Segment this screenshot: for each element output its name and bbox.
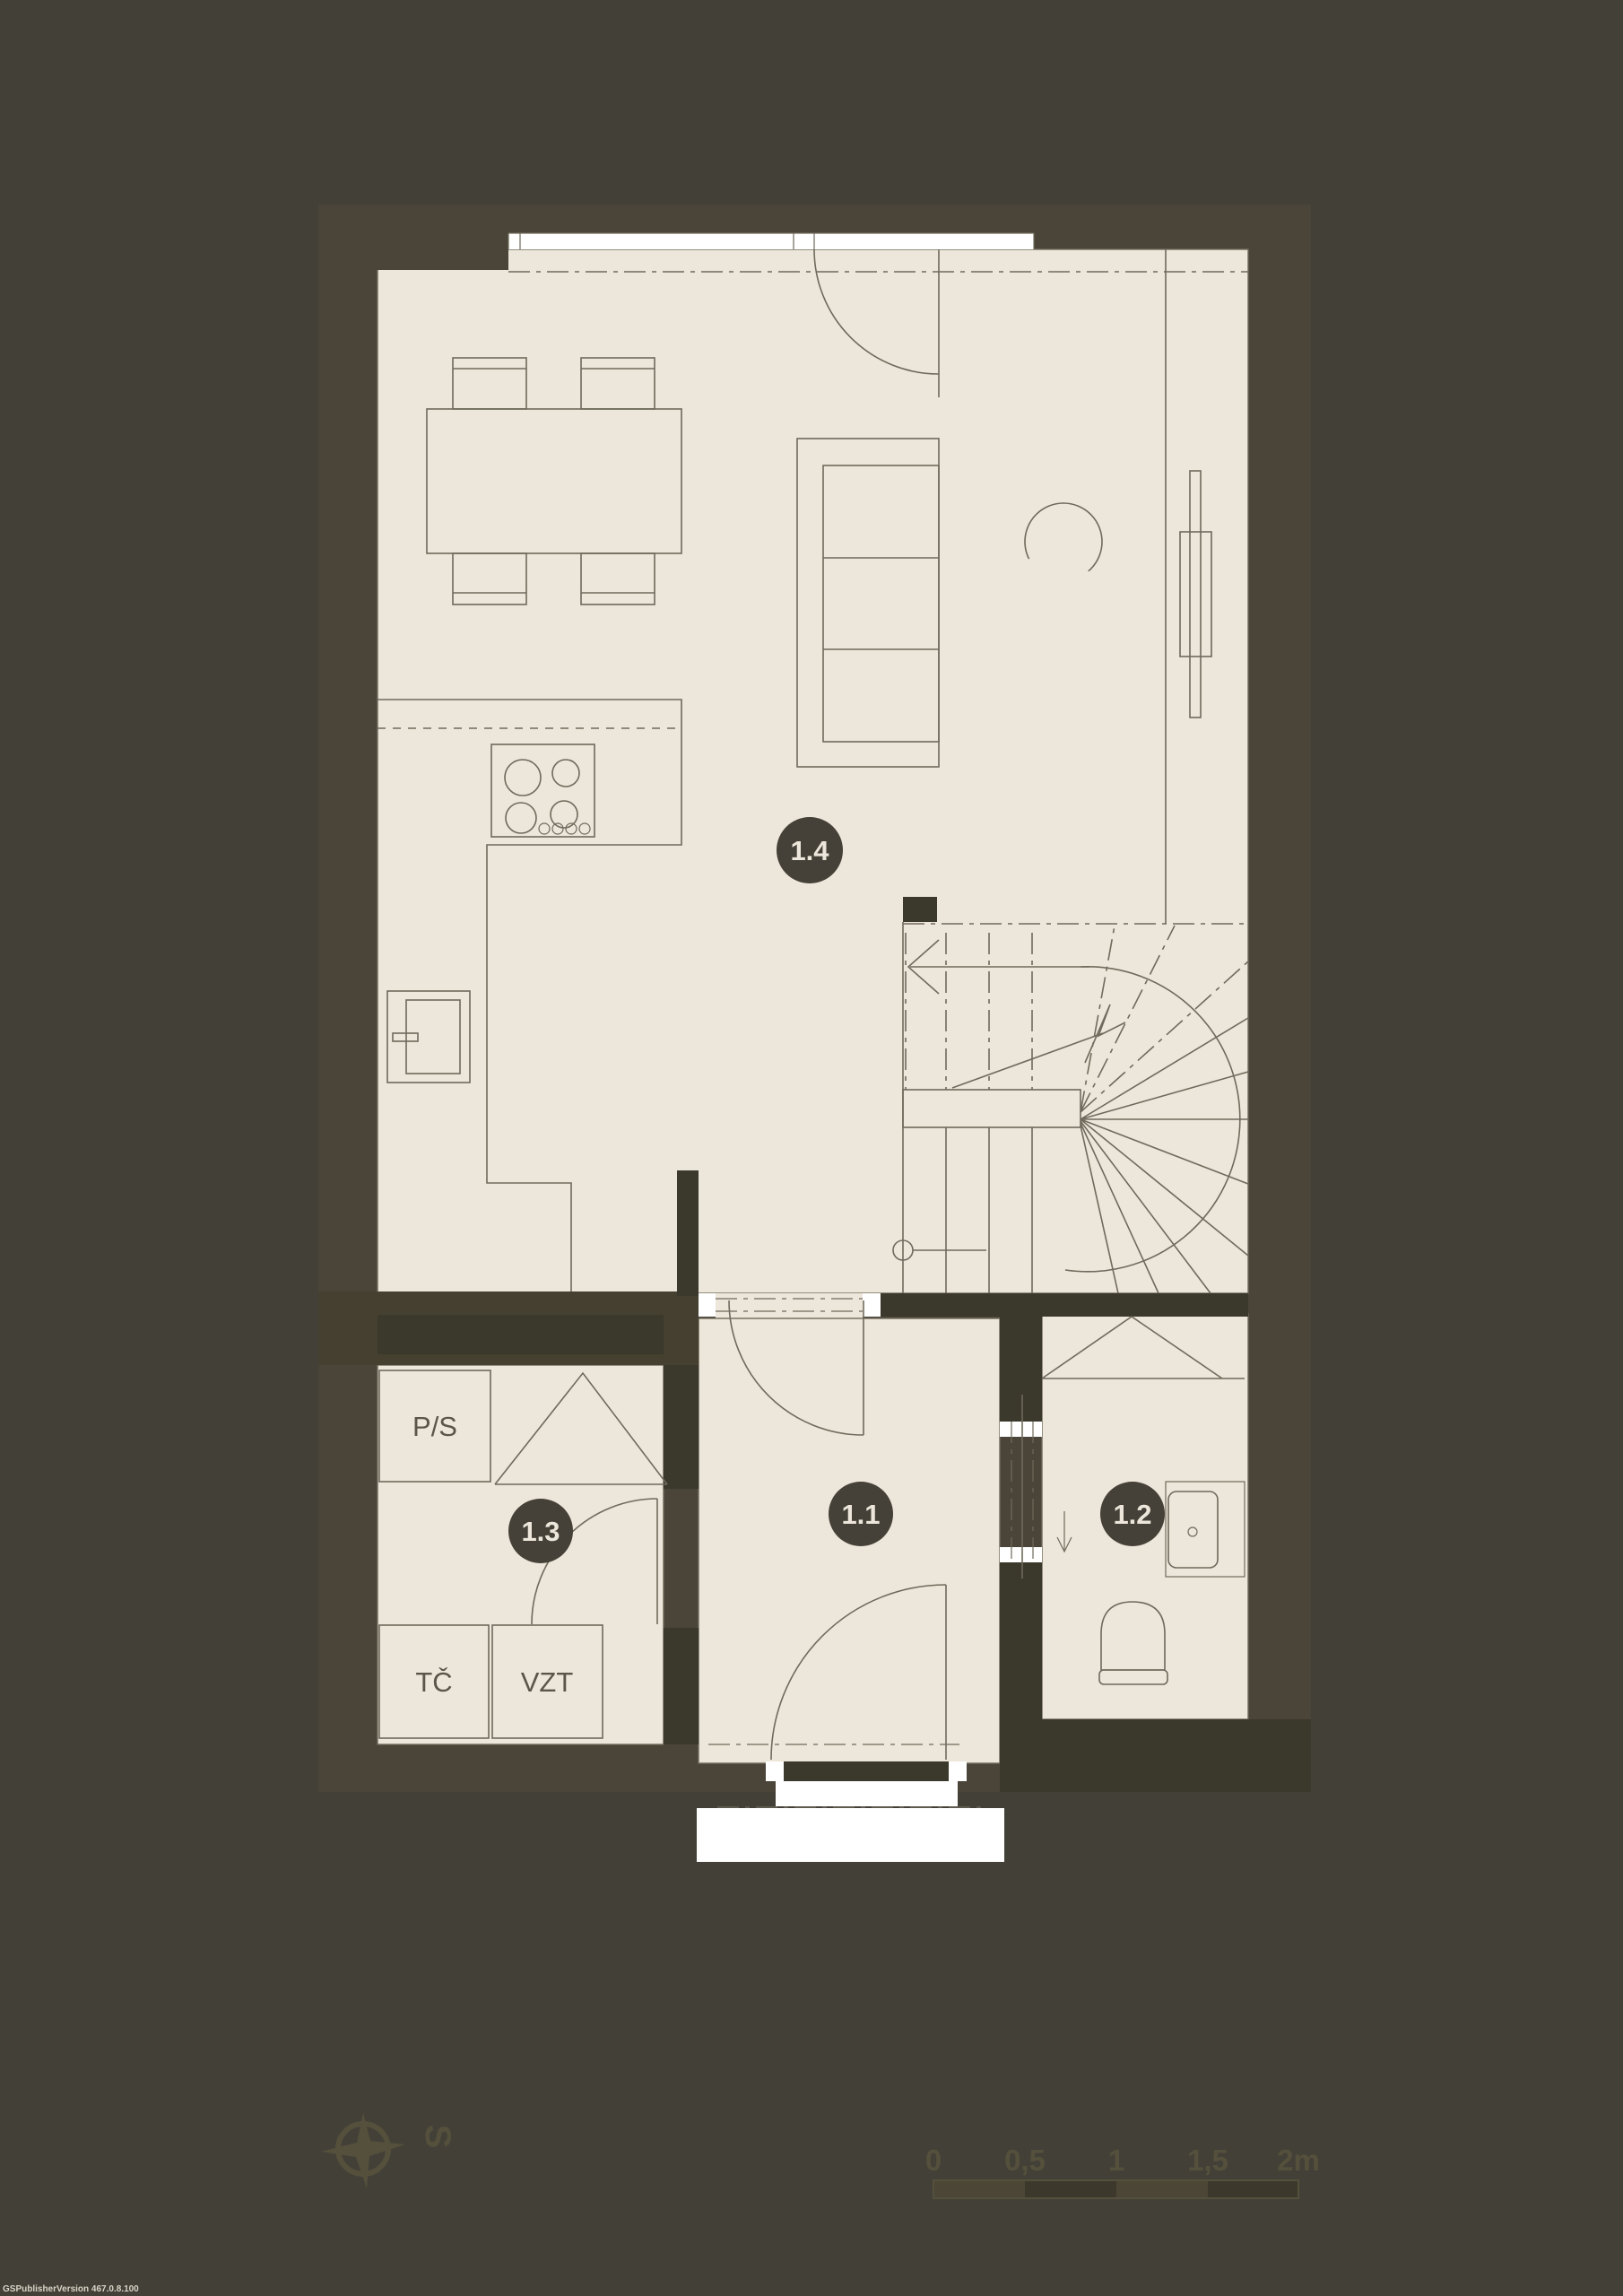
room-label-1-3: 1.3 <box>521 1516 560 1547</box>
entrance-step-2 <box>697 1808 1004 1862</box>
top-left-wall-step <box>377 248 508 270</box>
scale-tick-0-5: 0,5 <box>1004 2144 1046 2177</box>
wall-technical-hall-lower <box>664 1628 699 1744</box>
hall-doorway-floor <box>716 1293 863 1320</box>
ventilation-label: VZT <box>521 1666 574 1698</box>
room-living-floor <box>378 249 1248 1293</box>
scale-tick-1-5: 1,5 <box>1187 2144 1228 2177</box>
entrance-step-1 <box>776 1781 958 1806</box>
pocket-jamb-lower <box>1000 1547 1042 1562</box>
wall-living-technical-core <box>378 1315 664 1354</box>
wall-stair-hall <box>863 1293 1248 1317</box>
room-label-1-1: 1.1 <box>841 1499 880 1530</box>
scale-seg-3 <box>1116 2180 1208 2198</box>
wall-pocket-lower <box>1000 1562 1042 1719</box>
entrance-threshold <box>784 1761 949 1781</box>
wall-pier <box>677 1170 699 1296</box>
room-label-1-4: 1.4 <box>790 835 829 866</box>
scale-tick-0: 0 <box>925 2144 942 2177</box>
door-jamb-right <box>863 1293 881 1317</box>
pocket-jamb-upper <box>1000 1422 1042 1437</box>
entrance-jamb-right <box>949 1761 967 1781</box>
compass-north-label: S <box>418 2125 457 2149</box>
scale-seg-2 <box>1025 2180 1116 2198</box>
scale-seg-4 <box>1208 2180 1298 2198</box>
floor-plan-drawing: 1.4 1.1 1.2 1.3 P/S TČ VZT S 0 0,5 1 1,5… <box>0 0 1623 2296</box>
publisher-watermark: GSPublisherVersion 467.0.8.100 <box>3 2284 139 2294</box>
window-band <box>508 233 1034 249</box>
heat-pump-label: TČ <box>415 1666 452 1698</box>
washer-dryer-label: P/S <box>412 1411 457 1442</box>
wall-bathroom-bottom <box>1000 1719 1311 1792</box>
wall-technical-hall-upper <box>664 1365 699 1489</box>
scale-seg-1 <box>933 2180 1025 2198</box>
scale-tick-1: 1 <box>1108 2144 1124 2177</box>
door-jamb-left <box>699 1293 716 1317</box>
floor-plan-page: 1.4 1.1 1.2 1.3 P/S TČ VZT S 0 0,5 1 1,5… <box>0 0 1623 2296</box>
room-label-1-2: 1.2 <box>1113 1499 1151 1530</box>
scale-tick-2m: 2m <box>1277 2144 1320 2177</box>
wall-pocket-upper <box>1000 1293 1042 1422</box>
entrance-jamb-left <box>766 1761 784 1781</box>
stair-newel-block <box>903 897 937 922</box>
